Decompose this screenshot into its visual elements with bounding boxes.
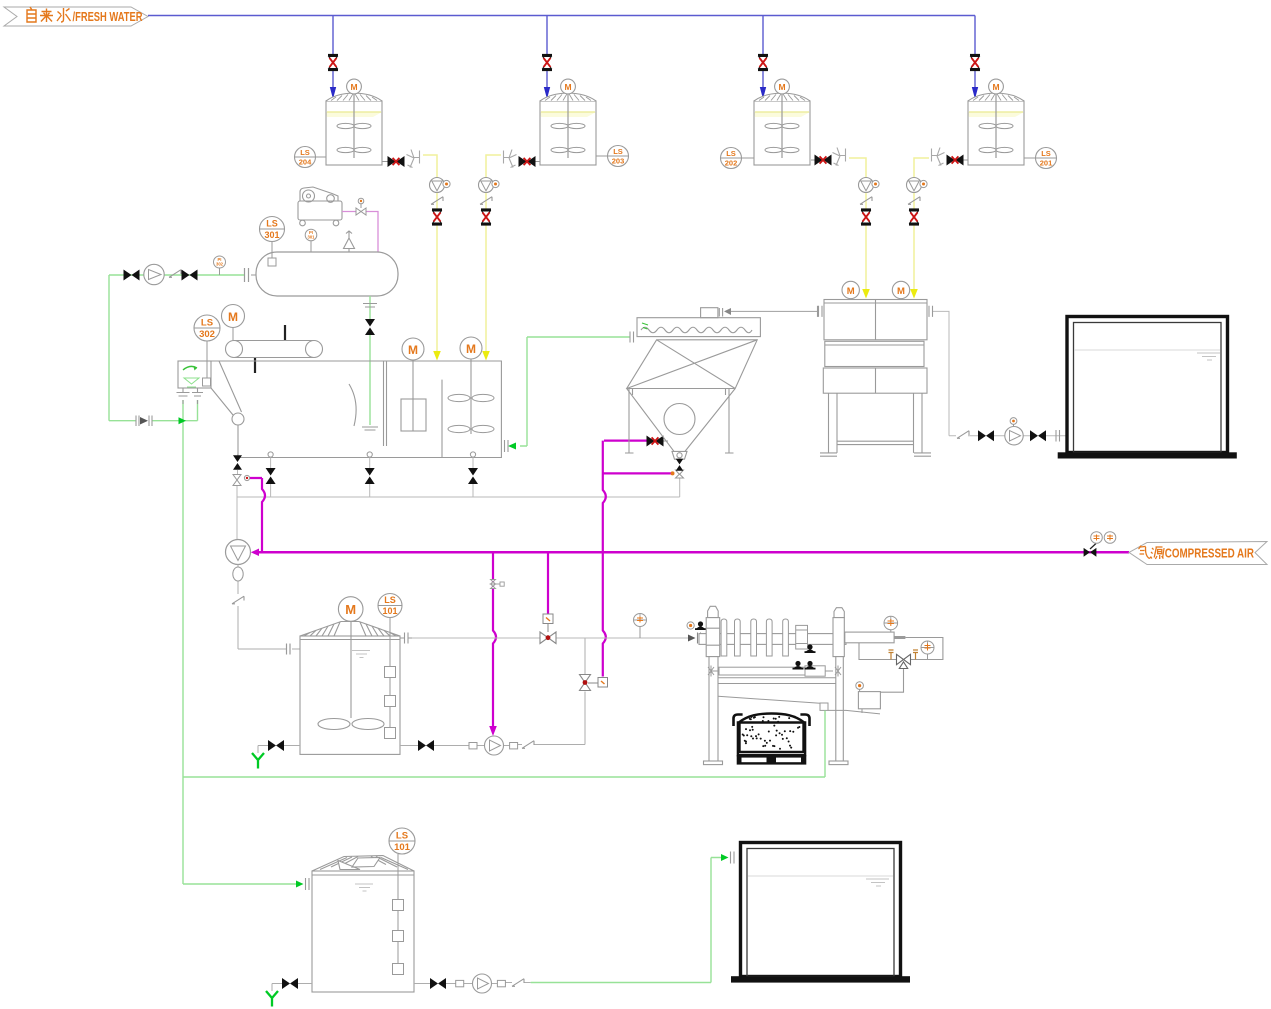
svg-text:302: 302	[199, 329, 215, 340]
svg-text:M: M	[847, 286, 855, 297]
svg-text:M: M	[466, 342, 476, 356]
svg-text:204: 204	[299, 158, 312, 167]
svg-text:LS: LS	[266, 219, 278, 229]
svg-text:LS: LS	[726, 149, 736, 158]
svg-text:LS: LS	[396, 831, 408, 842]
svg-text:203: 203	[612, 157, 625, 166]
svg-text:M: M	[345, 602, 356, 617]
svg-text:101: 101	[382, 606, 397, 616]
svg-text:101: 101	[394, 842, 411, 853]
svg-text:LS: LS	[300, 148, 310, 157]
svg-text:LS: LS	[613, 147, 623, 156]
svg-text:301: 301	[264, 230, 279, 240]
svg-text:301: 301	[308, 235, 316, 240]
svg-text:202: 202	[725, 159, 738, 168]
svg-text:M: M	[897, 286, 905, 297]
svg-text:/COMPRESSED AIR: /COMPRESSED AIR	[1162, 547, 1254, 561]
svg-text:/FRESH WATER: /FRESH WATER	[73, 10, 143, 24]
svg-text:M: M	[408, 343, 418, 357]
svg-text:LS: LS	[201, 318, 213, 329]
svg-text:201: 201	[1040, 159, 1053, 168]
svg-text:LS: LS	[384, 595, 396, 605]
svg-text:302: 302	[216, 262, 224, 267]
svg-text:M: M	[228, 310, 238, 324]
svg-text:LS: LS	[1041, 149, 1051, 158]
